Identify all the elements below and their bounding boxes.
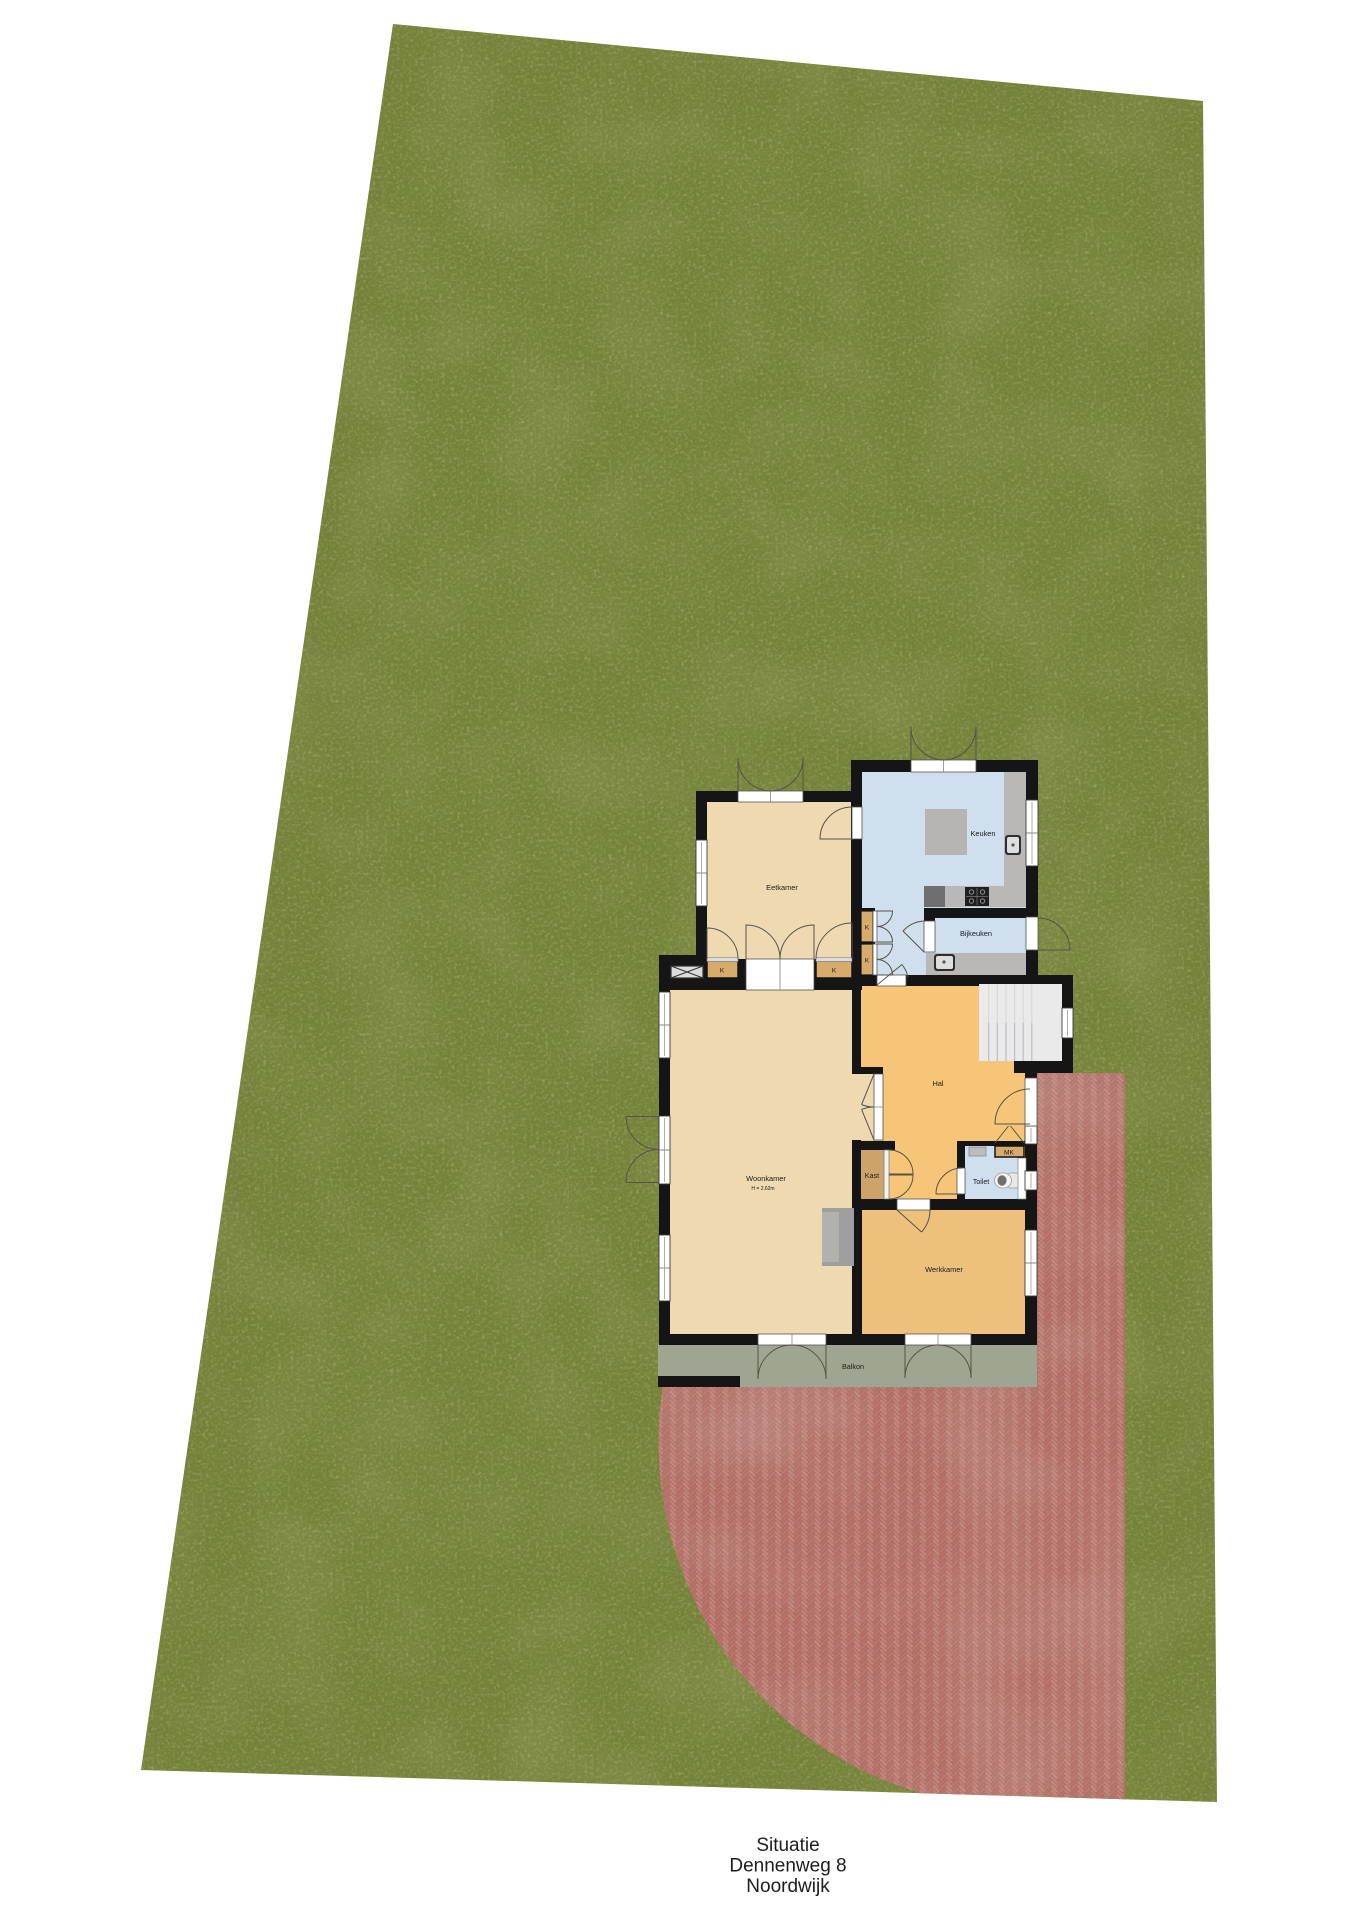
svg-text:K: K [865, 925, 870, 932]
svg-text:Balkon: Balkon [842, 1362, 864, 1371]
svg-text:Toilet: Toilet [973, 1179, 989, 1186]
svg-text:K: K [832, 968, 837, 975]
svg-text:Werkkamer: Werkkamer [925, 1265, 963, 1274]
svg-text:Keuken: Keuken [970, 829, 995, 838]
svg-text:K: K [720, 968, 725, 975]
svg-text:Hal: Hal [932, 1079, 943, 1088]
svg-text:H = 2.62m: H = 2.62m [751, 1186, 774, 1192]
svg-text:Situatie: Situatie [756, 1835, 819, 1856]
svg-text:Woonkamer: Woonkamer [746, 1174, 786, 1183]
svg-text:Kast: Kast [865, 1171, 879, 1180]
svg-text:Bijkeuken: Bijkeuken [960, 929, 992, 938]
svg-text:Eetkamer: Eetkamer [766, 883, 798, 892]
svg-text:Noordwijk: Noordwijk [746, 1876, 830, 1897]
svg-text:Dennenweg 8: Dennenweg 8 [729, 1856, 846, 1877]
svg-text:K: K [865, 958, 870, 965]
svg-text:MK: MK [1004, 1150, 1014, 1157]
